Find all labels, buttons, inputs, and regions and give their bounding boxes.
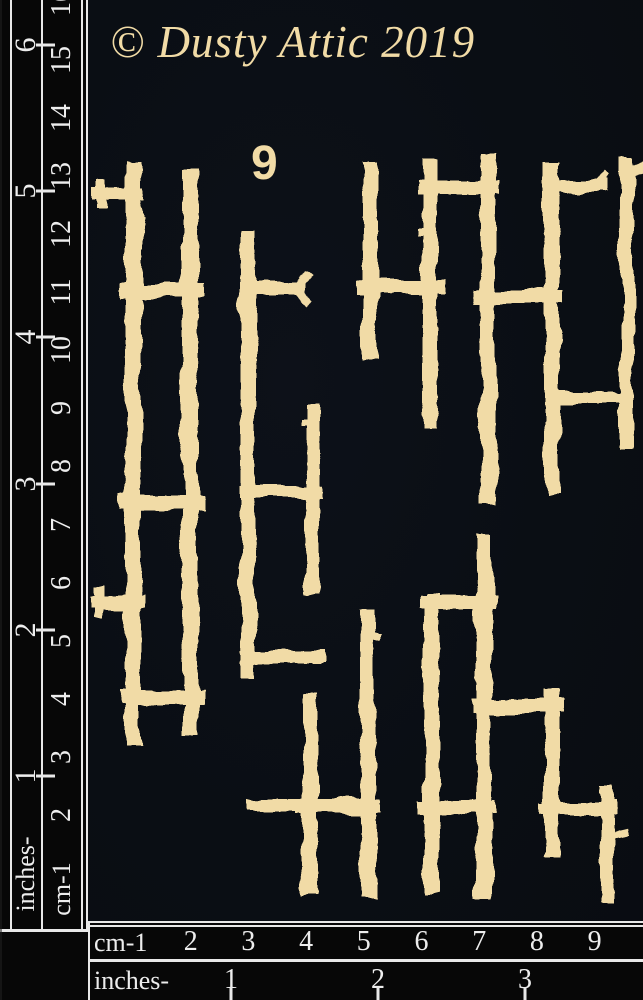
ruler-line [0,929,88,932]
left-ruler: inches- cm-1 234567891011121314151612345… [0,0,88,1000]
left-ruler-cm-number: 11 [46,279,78,306]
twig-segment [598,176,604,184]
twig-segment [627,167,642,173]
bottom-ruler-inches-label: inches- [94,966,169,996]
left-ruler-cm-number: 5 [46,634,78,648]
left-ruler-inch-tick [36,628,55,631]
left-ruler-cm-number: 2 [46,808,78,822]
copyright-text: © Dusty Attic 2019 [110,16,530,68]
left-ruler-cm-number: 16 [46,0,78,16]
chipboard-artwork [0,0,643,1000]
bottom-ruler-inch-tick [524,987,527,1000]
left-ruler-cm-number: 4 [46,692,78,706]
bottom-ruler-cm-number: 5 [357,926,371,958]
sheet-number: 9 [251,136,278,191]
left-ruler-cm-number: 7 [46,518,78,532]
ruler-line [81,0,83,931]
product-photo: © Dusty Attic 2019 9 inches- cm-1 234567… [0,0,643,1000]
left-ruler-cm-number: 3 [46,750,78,764]
bottom-ruler-cm-number: 3 [241,926,255,958]
left-ruler-inch-tick [36,44,55,47]
left-ruler-cm-number: 8 [46,459,78,473]
bottom-ruler-cm-number: 6 [415,926,429,958]
left-ruler-inches-label: inches- [11,836,41,911]
bottom-ruler-cm-number: 4 [299,926,313,958]
twig-segment [607,833,624,837]
bottom-ruler-cm-number: 9 [588,926,602,958]
left-ruler-cm-number: 9 [46,401,78,415]
bottom-ruler-cm-label: cm-1 [94,928,147,958]
twig-lattice [96,161,642,896]
bottom-ruler-cm-number: 8 [530,926,544,958]
ruler-line [41,0,43,931]
ruler-line [88,921,90,1000]
bottom-ruler-inch-tick [377,987,380,1000]
left-ruler-inch-tick [36,482,55,485]
left-ruler-inch-tick [36,190,55,193]
left-ruler-cm-number: 6 [46,576,78,590]
ruler-line [10,0,12,931]
left-ruler-cm-number: 14 [46,104,78,132]
scan-edge [0,0,2,1000]
bottom-ruler: cm-1 inches- 23456789123 [88,921,643,1000]
ruler-line [86,0,88,931]
left-ruler-cm-label: cm-1 [47,862,77,915]
bottom-ruler-cm-number: 2 [184,926,198,958]
bottom-ruler-inch-tick [230,987,233,1000]
left-ruler-cm-number: 12 [46,220,78,248]
left-ruler-inch-tick [36,336,55,339]
ruler-line [88,921,643,923]
left-ruler-cm-number: 10 [46,336,78,364]
ruler-line [88,959,643,962]
left-ruler-inch-tick [36,775,55,778]
left-ruler-cm-number: 15 [46,46,78,74]
left-ruler-cm-number: 13 [46,162,78,190]
bottom-ruler-cm-number: 7 [472,926,486,958]
